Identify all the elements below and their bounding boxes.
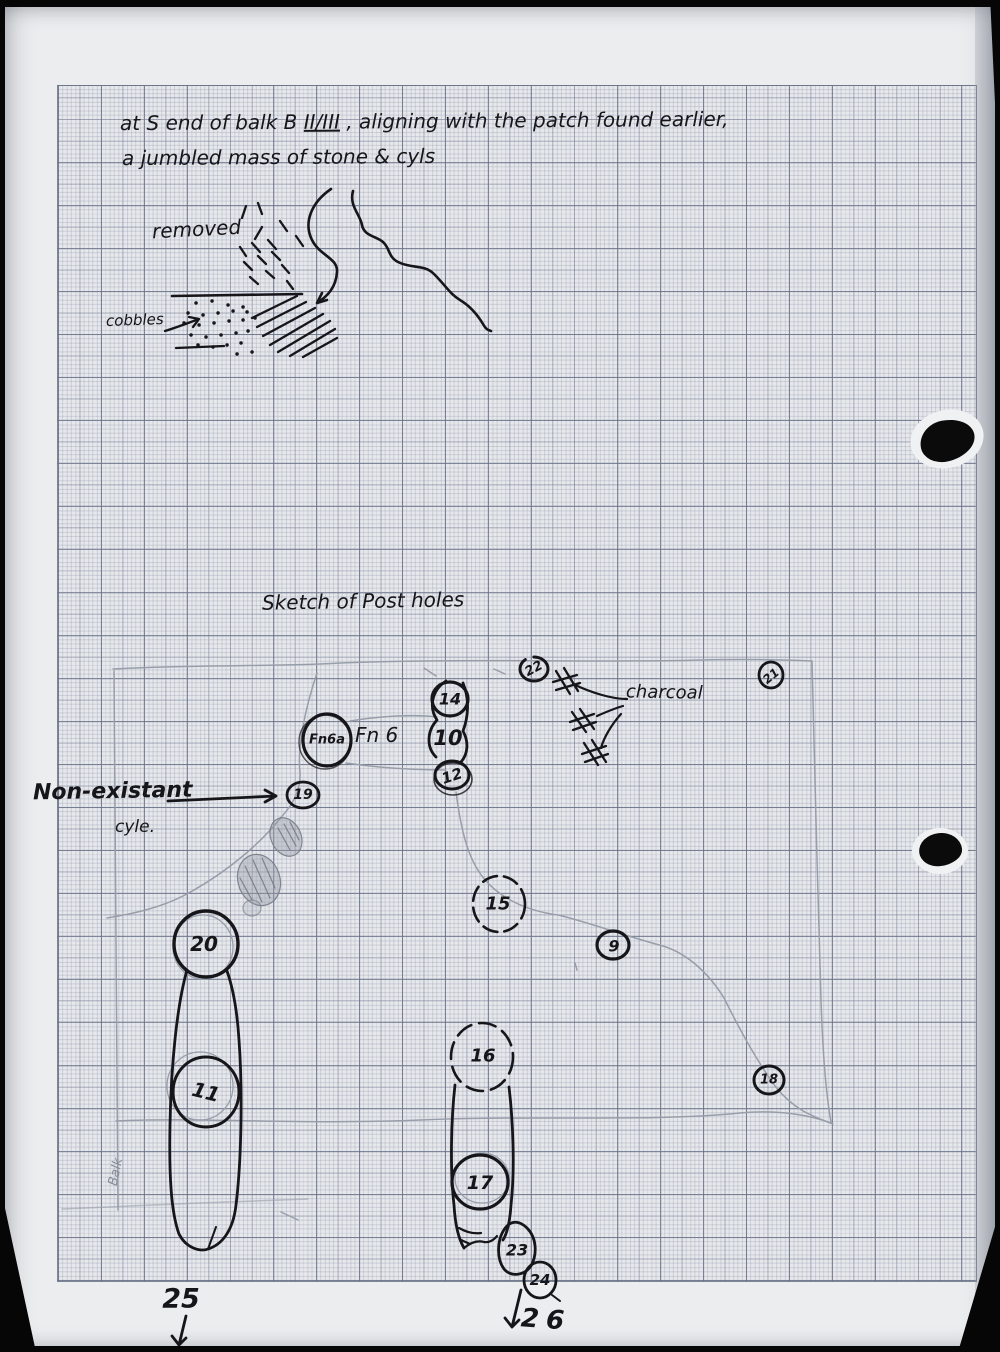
posthole-19-number: 19 (293, 787, 312, 803)
upper-sketch-ink (165, 189, 491, 357)
charcoal-hash-2 (570, 709, 596, 732)
plan-lower-faint-line (62, 1199, 308, 1209)
cobble-hatch-lines (252, 296, 337, 357)
cyle-label: cyle. (115, 818, 155, 837)
scan-edge-bottom (0, 1346, 1000, 1352)
margin-label-26: 26 (520, 1303, 572, 1336)
margin-label-25: 25 (162, 1284, 200, 1315)
dots-underline (176, 346, 224, 348)
cobble-area-top-line (172, 294, 302, 296)
left-trench-outline (170, 970, 241, 1250)
posthole-14-number: 14 (439, 690, 461, 709)
wavy-edge-line (352, 191, 491, 331)
posthole-16-number: 16 (470, 1046, 495, 1067)
posthole-20-number: 20 (190, 932, 218, 956)
stone-blob (243, 900, 261, 916)
non-existant-label: Non-existant (33, 779, 193, 806)
header-note-line1-prefix: at S end of balk B (120, 110, 304, 135)
stone-shading (231, 813, 308, 916)
plan-top-boundary (113, 660, 812, 669)
arrow-25 (172, 1316, 186, 1345)
posthole-15-number: 15 (485, 894, 510, 915)
postholes-sketch-title: Sketch of Post holes (262, 588, 465, 614)
removed-dash-marks (240, 203, 303, 289)
plan-ink-drawings (168, 668, 627, 1345)
charcoal-hash-3 (582, 740, 608, 765)
posthole-9-number: 9 (608, 937, 619, 956)
stone-blob (264, 813, 308, 862)
header-note-balk-levels: II/III (304, 110, 340, 134)
scanned-notebook-page: at S end of balk B II/III , aligning wit… (0, 0, 1000, 1352)
cobbles-arrow (165, 317, 199, 331)
fn6-label: Fn 6 (355, 724, 398, 746)
posthole-24-number: 24 (530, 1271, 551, 1289)
charcoal-hash-1 (553, 668, 580, 694)
header-note-line1: at S end of balk B II/III , aligning wit… (120, 108, 729, 134)
posthole-23-number: 23 (506, 1241, 528, 1260)
header-note-line1-suffix: , aligning with the patch found earlier, (340, 107, 729, 134)
charcoal-pointer-1 (573, 684, 627, 699)
posthole-10-number: 10 (433, 726, 462, 750)
posthole-18-number: 18 (760, 1073, 778, 1088)
fn6-lower-line (346, 763, 446, 770)
posthole-24-tail (552, 1295, 560, 1301)
posthole-circles (173, 657, 784, 1298)
fn6-upper-line (350, 716, 437, 721)
scan-edge-left (0, 0, 5, 1352)
removed-label: removed (151, 216, 241, 243)
sketch-drawing-layer (0, 0, 1000, 1352)
scan-edge-top (0, 0, 1000, 7)
feature-fn6a-number: Fn6a (309, 733, 345, 748)
arrow-curve (308, 189, 337, 303)
charcoal-label: charcoal (626, 682, 703, 703)
pencil-ticks (281, 668, 577, 1220)
right-trench-bottom (459, 1228, 497, 1248)
cobbles-label: cobbles (106, 311, 164, 330)
charcoal-pointer-3 (601, 714, 621, 748)
scan-edge-right (995, 0, 1000, 1352)
plan-left-boundary (114, 671, 118, 1210)
header-note-line2: a jumbled mass of stone & cyls (122, 145, 435, 169)
plan-right-boundary (812, 661, 831, 1122)
arrow-26 (505, 1290, 521, 1327)
posthole-17-number: 17 (467, 1172, 493, 1194)
